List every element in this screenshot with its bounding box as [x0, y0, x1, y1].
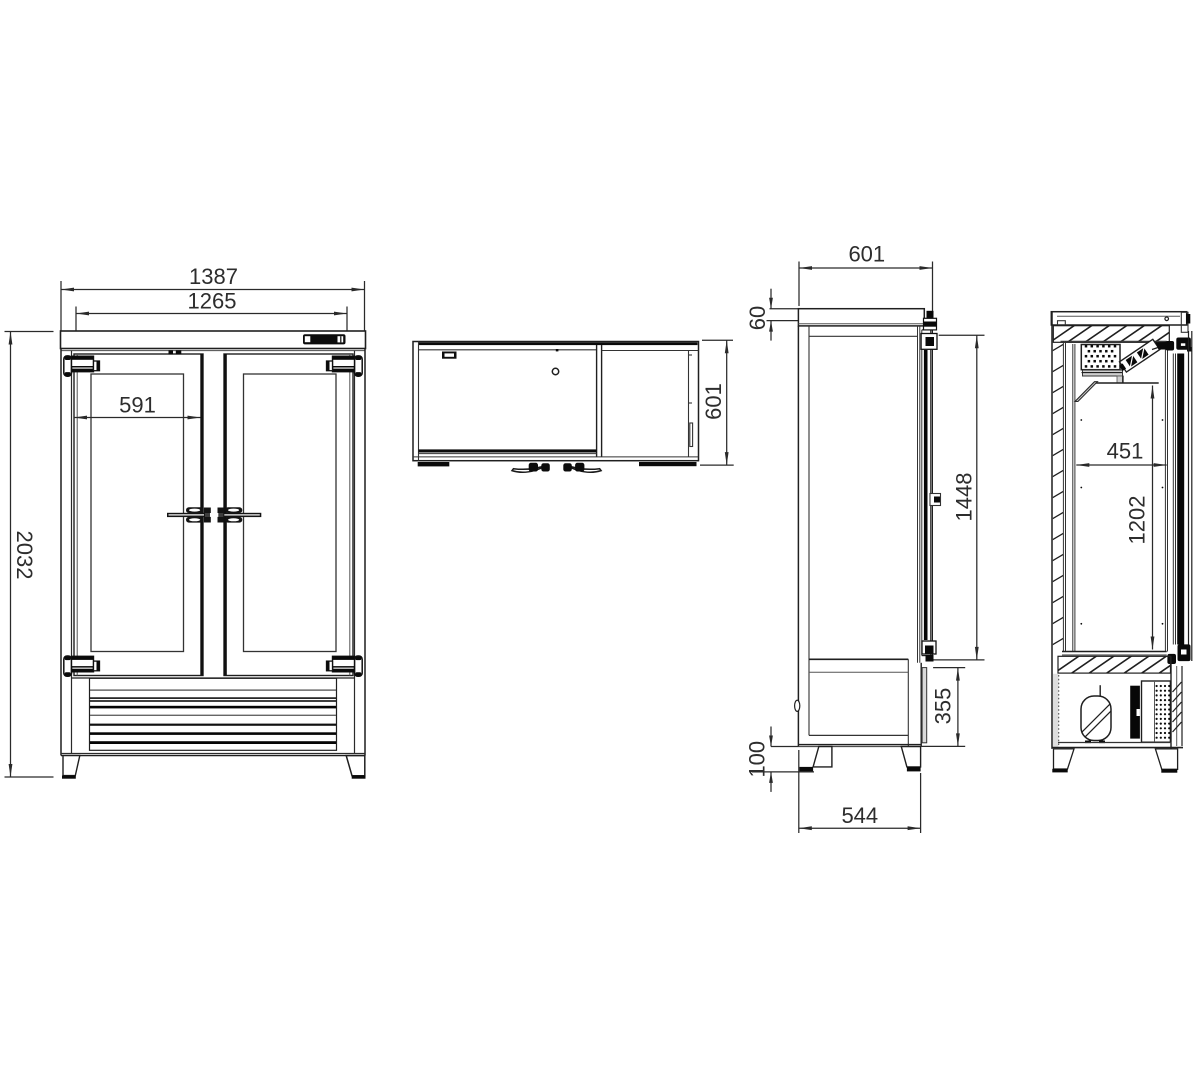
- svg-text:591: 591: [119, 393, 156, 418]
- svg-text:601: 601: [701, 383, 726, 420]
- svg-text:2032: 2032: [12, 531, 37, 580]
- svg-text:1202: 1202: [1125, 496, 1150, 545]
- svg-text:544: 544: [841, 803, 878, 828]
- svg-text:355: 355: [931, 688, 956, 725]
- svg-text:601: 601: [848, 242, 885, 267]
- svg-text:451: 451: [1107, 439, 1144, 464]
- svg-text:100: 100: [745, 741, 770, 778]
- svg-text:60: 60: [745, 306, 770, 330]
- svg-text:1448: 1448: [952, 473, 977, 522]
- svg-text:1265: 1265: [188, 289, 237, 314]
- svg-text:1387: 1387: [189, 264, 238, 289]
